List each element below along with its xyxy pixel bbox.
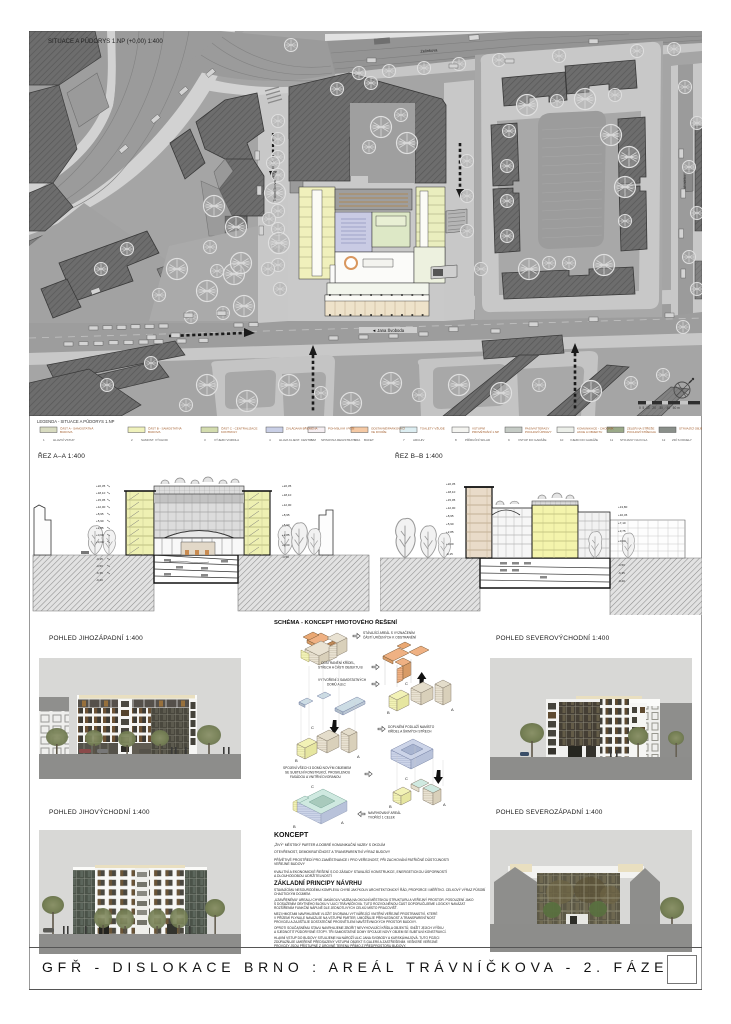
- svg-text:9: 9: [508, 438, 510, 442]
- svg-text:+8,95: +8,95: [96, 512, 104, 516]
- svg-text:-9,20: -9,20: [96, 578, 103, 582]
- svg-text:+5,90: +5,90: [446, 522, 454, 526]
- svg-text:1: 1: [43, 438, 45, 442]
- svg-text:A: A: [451, 707, 454, 712]
- svg-text:+15,05: +15,05: [96, 498, 106, 502]
- svg-text:11: 11: [610, 438, 613, 442]
- svg-text:-3,50: -3,50: [618, 563, 625, 567]
- svg-text:-6,35: -6,35: [96, 571, 103, 575]
- svg-text:8: 8: [455, 438, 457, 442]
- svg-text:ZVLÁDANÁ BŘEMENA: ZVLÁDANÁ BŘEMENA: [286, 426, 318, 431]
- svg-text:+12,00: +12,00: [282, 503, 292, 507]
- svg-text:2: 2: [131, 438, 133, 442]
- svg-text:+5,90: +5,90: [96, 519, 104, 523]
- svg-text:ARCHIV: ARCHIV: [413, 438, 424, 442]
- svg-text:C: C: [311, 725, 314, 730]
- svg-text:10: 10: [560, 438, 564, 442]
- svg-text:+18,10: +18,10: [282, 493, 292, 497]
- svg-text:TVOŘÍCÍ 1 CELEK: TVOŘÍCÍ 1 CELEK: [368, 815, 396, 820]
- svg-text:A: A: [443, 802, 446, 807]
- svg-text:ODSTRANĚNÍ KŘÍDEL,: ODSTRANĚNÍ KŘÍDEL,: [321, 660, 355, 665]
- svg-text:◄ Jana Švoboda: ◄ Jana Švoboda: [372, 328, 405, 333]
- svg-text:KŘÍDEL A ŠIKMÝCH STŘECH: KŘÍDEL A ŠIKMÝCH STŘECH: [388, 729, 432, 734]
- svg-text:+0,00: +0,00: [96, 540, 104, 544]
- svg-text:STŘECH A ČÁSTI OBJEKTU B: STŘECH A ČÁSTI OBJEKTU B: [318, 665, 363, 670]
- svg-text:+22,35: +22,35: [282, 484, 292, 488]
- svg-text:A: A: [357, 754, 360, 759]
- svg-text:BUDOVA: BUDOVA: [60, 430, 72, 434]
- svg-text:+2,85: +2,85: [446, 530, 454, 534]
- svg-text:+0,00: +0,00: [446, 542, 454, 546]
- svg-text:4: 4: [269, 438, 271, 442]
- svg-text:BUFET: BUFET: [364, 438, 374, 442]
- svg-text:B: B: [389, 804, 392, 809]
- svg-text:VJEZD DO GARÁŽE: VJEZD DO GARÁŽE: [570, 437, 598, 442]
- svg-text:POCHOZÍ ÚPRAVY: POCHOZÍ ÚPRAVY: [525, 429, 552, 434]
- svg-text:+2,85: +2,85: [96, 526, 104, 530]
- svg-text:BUDOVA: BUDOVA: [148, 430, 160, 434]
- svg-text:+12,00: +12,00: [446, 506, 456, 510]
- svg-text:SE SUBTILNÍ KONSTRUKCÍ, PROSKL: SE SUBTILNÍ KONSTRUKCÍ, PROSKLENOU: [285, 771, 351, 775]
- svg-text:+18,10: +18,10: [446, 490, 456, 494]
- svg-text:VÝJEZD VOZIDLA: VÝJEZD VOZIDLA: [214, 438, 239, 442]
- svg-text:+0,00: +0,00: [618, 539, 626, 543]
- svg-text:VYTVOŘENÍ 3 SAMOSTATNÝCH: VYTVOŘENÍ 3 SAMOSTATNÝCH: [318, 677, 367, 682]
- svg-text:0 5 10 20 30 40 50: 0 5 10 20 30 40 50 m: [639, 406, 680, 410]
- svg-text:PŘÍRUČNÍ SKLAD: PŘÍRUČNÍ SKLAD: [465, 437, 491, 442]
- svg-text:C: C: [405, 681, 408, 686]
- svg-text:+2,85: +2,85: [282, 533, 290, 537]
- svg-text:TOALETY VŠUDE: TOALETY VŠUDE: [420, 426, 445, 431]
- svg-text:B: B: [295, 758, 298, 763]
- svg-text:POCHOZÍ STŘECHA: POCHOZÍ STŘECHA: [627, 429, 656, 434]
- svg-text:DOPLNĚNÍ PODLAŽÍ NAMÍSTO: DOPLNĚNÍ PODLAŽÍ NAMÍSTO: [388, 724, 435, 729]
- svg-text:-3,50: -3,50: [96, 564, 103, 568]
- svg-text:STOJANY NA KOLA: STOJANY NA KOLA: [620, 438, 647, 442]
- svg-text:ZDÍ S PANELY: ZDÍ S PANELY: [672, 438, 692, 442]
- svg-text:+22,35: +22,35: [96, 484, 106, 488]
- svg-text:PROVĚTRÁNÍ 1.NP: PROVĚTRÁNÍ 1.NP: [472, 429, 499, 434]
- svg-text:SAMOST. VÝCHOD: SAMOST. VÝCHOD: [141, 438, 169, 442]
- svg-text:VSTUP DO GARÁŽE: VSTUP DO GARÁŽE: [518, 437, 546, 442]
- svg-text:C: C: [405, 776, 408, 781]
- svg-text:+10,45: +10,45: [618, 513, 628, 517]
- svg-text:B: B: [387, 710, 390, 715]
- svg-text:B: B: [293, 824, 296, 829]
- svg-text:+15,05: +15,05: [446, 498, 456, 502]
- svg-text:STÁVAJÍCÍ OBJEKTY: STÁVAJÍCÍ OBJEKTY: [679, 427, 702, 431]
- svg-text:+7,10: +7,10: [618, 521, 626, 525]
- svg-text:ČÁSTÍ URČENÝCH K ODSTRANĚNÍ: ČÁSTÍ URČENÝCH K ODSTRANĚNÍ: [363, 635, 416, 640]
- svg-text:+22,35: +22,35: [446, 482, 456, 486]
- svg-text:C: C: [311, 784, 314, 789]
- svg-text:NAVRHOVANÝ AREÁL: NAVRHOVANÝ AREÁL: [368, 811, 401, 815]
- svg-text:+8,95: +8,95: [446, 514, 454, 518]
- svg-text:-0,15: -0,15: [96, 557, 103, 561]
- svg-text:7: 7: [403, 438, 405, 442]
- svg-text:+12,00: +12,00: [96, 505, 106, 509]
- svg-text:-0,15: -0,15: [446, 552, 453, 556]
- svg-text:STÁVAJÍCÍ AREÁL S VYZNAČENÍM: STÁVAJÍCÍ AREÁL S VYZNAČENÍM: [363, 630, 415, 635]
- svg-text:HLAVNÍ VSTUP: HLAVNÍ VSTUP: [53, 438, 74, 442]
- svg-text:FASÁDOU A VNITŘNÍ DVORANOU: FASÁDOU A VNITŘNÍ DVORANOU: [290, 774, 342, 779]
- svg-text:VE DVOŘE: VE DVOŘE: [371, 429, 387, 434]
- svg-text:KONTROLY: KONTROLY: [221, 430, 237, 434]
- svg-text:DOMÛ A,B,C: DOMÛ A,B,C: [327, 682, 346, 687]
- svg-text:+13,80: +13,80: [618, 505, 628, 509]
- svg-text:A: A: [341, 820, 344, 825]
- svg-text:POHYBLIVÁ I PĚŠÍ: POHYBLIVÁ I PĚŠÍ: [328, 426, 355, 431]
- svg-text:+18,10: +18,10: [96, 491, 106, 495]
- svg-text:+0,60: +0,60: [96, 533, 104, 537]
- svg-text:AKCE A OBJEKTU: AKCE A OBJEKTU: [577, 430, 602, 434]
- svg-text:Trávníčkova: Trávníčkova: [272, 179, 277, 201]
- svg-text:+0,00: +0,00: [282, 543, 290, 547]
- svg-text:-9,20: -9,20: [618, 579, 625, 583]
- svg-text:3: 3: [204, 438, 206, 442]
- svg-text:12: 12: [662, 438, 666, 442]
- svg-text:+3,75: +3,75: [618, 529, 626, 533]
- svg-text:-3,50: -3,50: [282, 555, 289, 559]
- svg-text:-6,35: -6,35: [618, 571, 625, 575]
- svg-text:+8,95: +8,95: [282, 513, 290, 517]
- svg-text:SPOJENÍ VŠECH 3 DOMÛ NOVÝM OBJ: SPOJENÍ VŠECH 3 DOMÛ NOVÝM OBJEMEM: [283, 765, 351, 770]
- svg-text:+5,90: +5,90: [282, 523, 290, 527]
